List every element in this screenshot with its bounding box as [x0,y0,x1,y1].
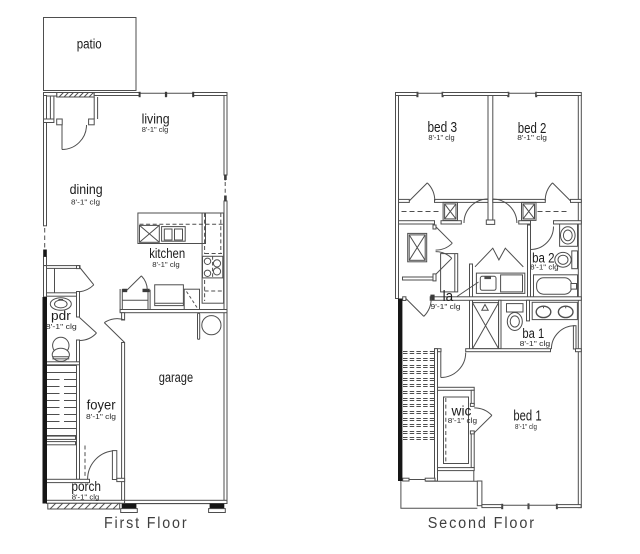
svg-text:8'-1" clg: 8'-1" clg [428,133,454,142]
svg-text:8'-1" clg: 8'-1" clg [46,322,77,331]
svg-text:8'-1" clg: 8'-1" clg [72,493,100,502]
svg-text:patio: patio [77,37,102,52]
svg-text:8'-1" clg: 8'-1" clg [515,422,537,431]
svg-text:8'-1" clg: 8'-1" clg [142,125,169,134]
svg-text:8'-1" clg: 8'-1" clg [520,339,551,348]
svg-text:First Floor: First Floor [104,515,189,532]
svg-text:8'-1" clg: 8'-1" clg [86,412,116,421]
svg-text:kitchen: kitchen [149,246,185,261]
svg-text:pdr: pdr [51,309,71,323]
svg-text:Second Floor: Second Floor [428,515,536,532]
svg-text:9'-1" clg: 9'-1" clg [431,302,461,311]
svg-text:8'-1" clg: 8'-1" clg [517,133,547,142]
svg-text:dining: dining [70,182,103,197]
svg-text:8'-1" clg: 8'-1" clg [530,263,559,272]
svg-text:garage: garage [159,370,193,385]
svg-text:8'-1" clg: 8'-1" clg [448,416,477,425]
svg-text:foyer: foyer [87,398,116,413]
svg-text:8'-1" clg: 8'-1" clg [152,260,180,269]
svg-text:8'-1" clg: 8'-1" clg [71,198,100,207]
